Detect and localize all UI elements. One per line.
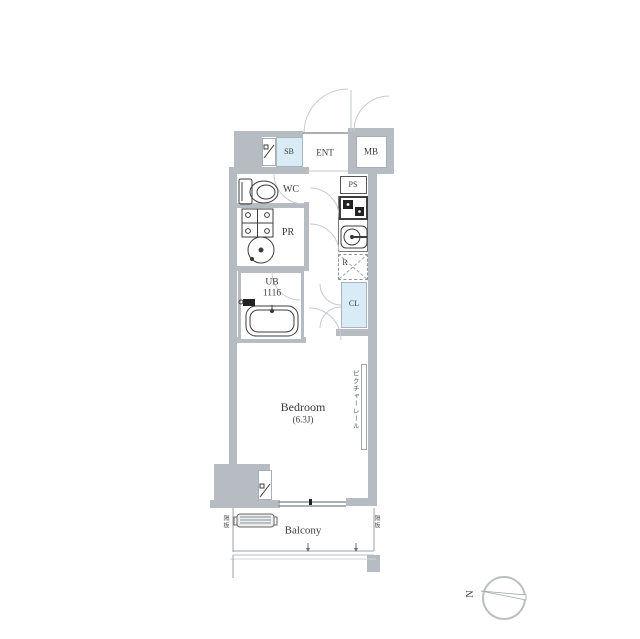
sink-icon [341, 226, 367, 248]
floor-plan: N SB ENT MB WC PS PR R UB 1116 CL Bedroo… [0, 0, 640, 639]
ac-outdoor-unit-icon [234, 514, 277, 527]
compass-needle [481, 591, 526, 600]
stove-icon [340, 197, 367, 219]
pipe-space-label: PS [349, 181, 358, 189]
shoe-box-label: SB [284, 148, 294, 156]
meter-box-label: MB [364, 148, 378, 157]
closet-label: CL [349, 300, 359, 308]
balcony-label: Balcony [285, 526, 322, 537]
partition-label-right: 隔板 [373, 515, 379, 529]
door-arcs [272, 89, 389, 340]
bedroom-label: Bedroom [281, 401, 326, 413]
meter-box-door-arc [354, 96, 389, 131]
unit-bath-size: 1116 [263, 289, 281, 299]
partition-label-left: 隔板 [222, 515, 228, 529]
compass-north-label: N [465, 590, 476, 597]
plan-linework: N [0, 0, 640, 639]
bathtub-icon [239, 299, 298, 336]
bedroom-size-label: (6.3J) [293, 416, 314, 425]
equipment-symbol-top-icon [264, 145, 274, 158]
hall-door-arc-2 [310, 224, 339, 253]
wc-label: WC [283, 185, 299, 195]
unit-bath-label: UB [265, 278, 278, 288]
closet-door-arc-top [320, 284, 341, 305]
entrance-door-arc [304, 89, 348, 133]
fixtures [234, 145, 368, 527]
bedroom-door-arc [309, 308, 341, 340]
hall-door-arc-1 [310, 188, 339, 217]
washbasin-icon [248, 237, 274, 263]
window-latch [309, 499, 312, 505]
refrigerator-label: R [342, 259, 347, 267]
compass: N [465, 577, 526, 619]
washer-pan-icon [242, 209, 273, 237]
equipment-symbol-bottom-icon [260, 484, 270, 497]
entrance-label: ENT [316, 149, 334, 158]
toilet-icon [239, 179, 278, 204]
picture-rail-label: ピクチャーレール [351, 370, 358, 430]
powder-room-label: PR [282, 228, 294, 238]
